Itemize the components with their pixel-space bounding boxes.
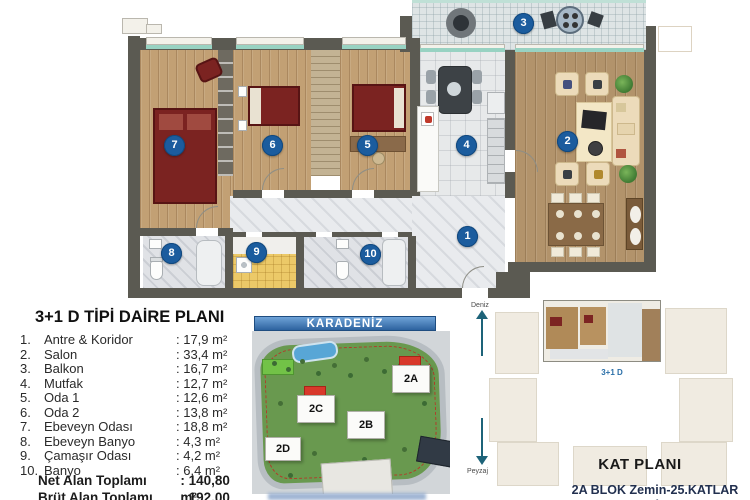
site-plan-header: KARADENİZ	[254, 316, 436, 331]
direction-label-top: Deniz	[471, 302, 489, 309]
kat-plani-title: KAT PLANI	[565, 456, 715, 473]
dining-chair-icon	[587, 193, 600, 203]
faded-unit	[489, 378, 537, 442]
dining-chair-icon	[587, 247, 600, 257]
arrow-up-icon	[475, 310, 489, 358]
kitchen-chair-icon	[426, 70, 436, 84]
block-2c: 2C	[297, 395, 335, 423]
block-2a: 2A	[392, 365, 430, 393]
faded-unit	[497, 442, 559, 486]
legend-row: 3.Balkon: 16,7 m²	[20, 362, 240, 377]
legend-num: 4.	[20, 377, 44, 392]
wall-bed7-bottom	[140, 228, 233, 236]
wall-salon-right	[644, 50, 656, 266]
plate-icon	[447, 82, 461, 96]
legend-row: 1.Antre & Koridor: 17,9 m²	[20, 333, 240, 348]
dining-chair-icon	[569, 193, 582, 203]
tray-icon	[617, 123, 635, 135]
legend-area: : 4,2 m²	[176, 449, 240, 464]
glass-room7	[146, 45, 212, 49]
mini-bed	[550, 317, 562, 326]
room-marker-10: 10	[360, 244, 381, 265]
door-gap-bath9	[316, 232, 332, 237]
legend-name: Mutfak	[44, 377, 176, 392]
legend-name: Antre & Koridor	[44, 333, 176, 348]
legend-row: 6.Oda 2: 13,8 m²	[20, 406, 240, 421]
dining-table-icon	[548, 203, 604, 246]
door-gap-room5	[352, 190, 374, 198]
laptop-icon	[581, 110, 607, 130]
legend-panel: 3+1 D TİPİ DAİRE PLANI 1.Antre & Koridor…	[0, 300, 250, 500]
arrow-shaft	[481, 418, 483, 456]
door-gap-bath10	[382, 232, 398, 237]
legend-num: 8.	[20, 435, 44, 450]
mini-room	[580, 307, 606, 345]
block-2b-label: 2B	[359, 419, 373, 431]
chimney-notch-b	[146, 24, 162, 34]
legend-area: : 12,6 m²	[176, 391, 240, 406]
legend-name: Ebeveyn Odası	[44, 420, 176, 435]
pillow-icon	[187, 114, 211, 130]
speaker-icon	[630, 228, 641, 245]
legend-area: : 12,7 m²	[176, 377, 240, 392]
cushion-icon	[563, 80, 572, 89]
pillow-icon	[616, 103, 626, 112]
balcony-bench-icon	[446, 8, 476, 38]
desk-chair-icon	[372, 152, 385, 165]
legend-num: 6.	[20, 406, 44, 421]
legend-name: Balkon	[44, 362, 176, 377]
glass-room5	[342, 45, 406, 49]
legend-num: 1.	[20, 333, 44, 348]
bench-center-icon	[453, 15, 469, 31]
lawn	[262, 359, 294, 375]
room-marker-7: 7	[164, 135, 185, 156]
mini-hall	[550, 349, 608, 359]
room-marker-4: 4	[456, 135, 477, 156]
coffee-table-icon	[576, 102, 612, 162]
plant-icon	[615, 75, 633, 93]
legend-name: Oda 1	[44, 391, 176, 406]
door-gap-room6	[262, 190, 284, 198]
legend-area: : 18,8 m²	[176, 420, 240, 435]
exterior-detail-outline	[658, 26, 692, 52]
gross-area-total: Brüt Alan Toplamı : 192,00 m²	[38, 489, 248, 500]
legend-area: : 4,3 m²	[176, 435, 240, 450]
pillow-icon	[616, 149, 626, 158]
pillow-icon	[394, 88, 404, 128]
kat-plani-line1: 2A BLOK Zemin-25.KATLAR	[565, 483, 745, 497]
mini-room	[546, 307, 578, 349]
arrow-down-icon	[475, 418, 489, 466]
gross-area-label: Brüt Alan Toplamı	[38, 489, 180, 500]
wall-bottom	[128, 288, 510, 298]
kat-plani-panel: Deniz Peyzaj 3+1 D KAT PLANI 2A BLOK Zem…	[455, 290, 750, 500]
legend-name: Ebeveyn Banyo	[44, 435, 176, 450]
wall-bath10-antre	[408, 236, 416, 289]
toilet-icon	[150, 261, 163, 280]
legend-num: 9.	[20, 449, 44, 464]
arrow-shaft	[481, 318, 483, 356]
legend-name: Salon	[44, 348, 176, 363]
fridge-icon	[487, 118, 505, 184]
stove-icon	[421, 112, 434, 126]
block-2d: 2D	[265, 437, 301, 461]
kettle-icon	[425, 116, 432, 123]
legend-area: : 13,8 m²	[176, 406, 240, 421]
wall-salon-bottom	[508, 262, 656, 272]
wall-bed56-bottom	[233, 190, 412, 198]
shower-icon	[382, 239, 406, 286]
balcony-railing	[412, 0, 646, 3]
tv-console-icon	[626, 198, 643, 250]
watermark-blur	[268, 493, 426, 500]
nightstand-icon	[238, 120, 247, 131]
dining-chair-icon	[551, 193, 564, 203]
legend-num: 2.	[20, 348, 44, 363]
bathtub-icon	[196, 240, 222, 286]
bed-icon	[248, 86, 300, 126]
trees	[272, 361, 277, 366]
armchair-icon	[555, 72, 579, 96]
block-2d-label: 2D	[276, 443, 290, 455]
wall-bath9-10	[296, 236, 304, 289]
legend-area: : 33,4 m²	[176, 348, 240, 363]
window-room6	[236, 37, 304, 45]
armchair-icon	[555, 162, 579, 186]
room-marker-9: 9	[246, 242, 267, 263]
wall-kitchen-salon-b	[505, 172, 515, 198]
plant-icon	[619, 165, 637, 183]
sink-icon	[149, 239, 162, 249]
legend-num: 3.	[20, 362, 44, 377]
dining-chair-icon	[551, 247, 564, 257]
cushion-icon	[594, 170, 603, 179]
glass-room6	[236, 45, 304, 49]
gross-area-value: : 192,00 m²	[180, 489, 248, 500]
room-marker-5: 5	[357, 135, 378, 156]
wall-bath8-9	[225, 236, 233, 289]
legend-list: 1.Antre & Koridor: 17,9 m² 2.Salon: 33,4…	[20, 333, 240, 478]
legend-row: 4.Mutfak: 12,7 m²	[20, 377, 240, 392]
apartment-floor-plan: 1 2 3 4 5 6 7 8 9 10	[0, 0, 750, 300]
arrow-head	[476, 456, 488, 465]
toilet-icon	[336, 261, 349, 280]
site-plan-panel: KARADENİZ 2A 2C 2B 2D	[252, 316, 450, 500]
legend-row: 9.Çamaşır Odası: 4,2 m²	[20, 449, 240, 464]
faded-unit	[665, 308, 727, 374]
legend-row: 7.Ebeveyn Odası: 18,8 m²	[20, 420, 240, 435]
balcony-table-icon	[556, 6, 584, 34]
site-map: 2A 2C 2B 2D	[252, 331, 450, 494]
direction-label-bottom: Peyzaj	[467, 468, 488, 475]
dining-chair-icon	[569, 247, 582, 257]
sink-icon	[487, 92, 505, 114]
wall-left	[128, 36, 140, 298]
light-building	[321, 458, 394, 493]
highlighted-unit	[543, 300, 661, 362]
room-marker-3: 3	[513, 13, 534, 34]
legend-num: 5.	[20, 391, 44, 406]
block-2a-label: 2A	[404, 373, 418, 385]
wall-kitchen-salon-a	[505, 50, 515, 150]
sink-icon	[336, 239, 349, 249]
round-table-icon	[588, 141, 603, 156]
room-marker-1: 1	[457, 226, 478, 247]
wall-balcony-right	[646, 26, 656, 52]
mini-salon	[642, 309, 660, 361]
window-room5	[342, 37, 406, 45]
window-room7	[146, 37, 212, 45]
legend-name: Çamaşır Odası	[44, 449, 176, 464]
room-marker-8: 8	[161, 243, 182, 264]
glass-salon-balcony	[515, 48, 644, 52]
bed-icon	[352, 84, 406, 132]
legend-row: 8.Ebeveyn Banyo: 4,3 m²	[20, 435, 240, 450]
door-gap-room7	[196, 228, 218, 236]
kitchen-chair-icon	[472, 70, 482, 84]
mini-bed	[584, 315, 593, 323]
block-2b: 2B	[347, 411, 385, 439]
door-gap-bath8	[246, 232, 262, 237]
pillow-icon	[250, 88, 261, 124]
pillow-icon	[159, 114, 183, 130]
armchair-icon	[585, 72, 609, 96]
legend-name: Oda 2	[44, 406, 176, 421]
block-2c-label: 2C	[309, 403, 323, 415]
dining-plates	[556, 210, 564, 218]
unit-label: 3+1 D	[587, 368, 637, 377]
legend-area: : 16,7 m²	[176, 362, 240, 377]
legend-num: 7.	[20, 420, 44, 435]
glass-kitchen-balcony	[420, 48, 505, 52]
cushion-icon	[593, 80, 602, 89]
cushion-icon	[563, 170, 572, 179]
mini-kitchen	[608, 303, 642, 357]
closet-shelves	[311, 50, 340, 176]
nightstand-icon	[238, 86, 247, 97]
kitchen-chair-icon	[426, 90, 436, 104]
bed-icon	[153, 108, 217, 204]
speaker-icon	[630, 206, 641, 223]
room-marker-2: 2	[557, 131, 578, 152]
legend-area: : 17,9 m²	[176, 333, 240, 348]
faded-unit	[495, 312, 539, 374]
kitchen-chair-icon	[472, 90, 482, 104]
hall-floor	[230, 196, 412, 236]
room-marker-6: 6	[262, 135, 283, 156]
chimney-notch-a	[122, 18, 148, 34]
sofa-icon	[612, 96, 640, 166]
armchair-icon	[586, 162, 610, 186]
table-dots	[563, 13, 569, 19]
legend-row: 2.Salon: 33,4 m²	[20, 348, 240, 363]
legend-title: 3+1 D TİPİ DAİRE PLANI	[35, 308, 224, 327]
legend-row: 5.Oda 1: 12,6 m²	[20, 391, 240, 406]
faded-unit	[679, 378, 733, 442]
